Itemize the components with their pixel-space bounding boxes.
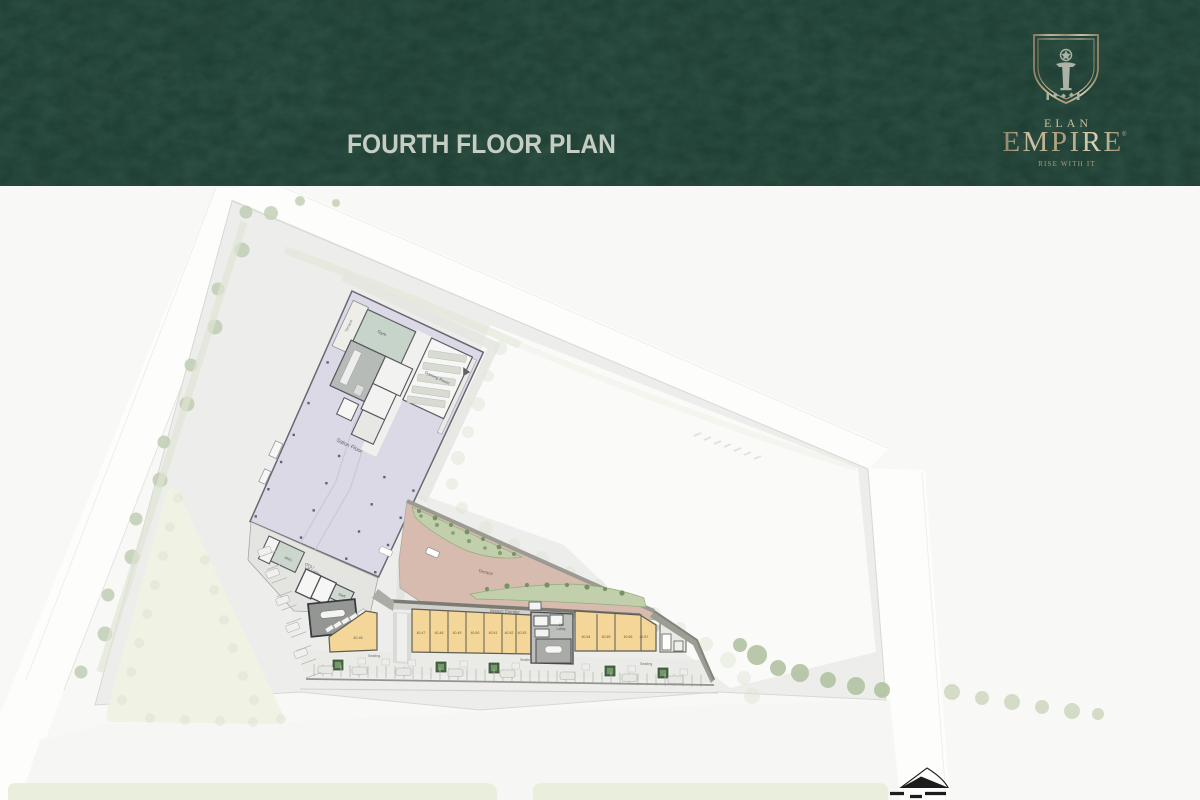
svg-text:EMPIRE: EMPIRE [1002,126,1123,158]
svg-text:®: ® [1122,131,1127,138]
svg-text:RISE WITH IT: RISE WITH IT [1038,160,1096,168]
